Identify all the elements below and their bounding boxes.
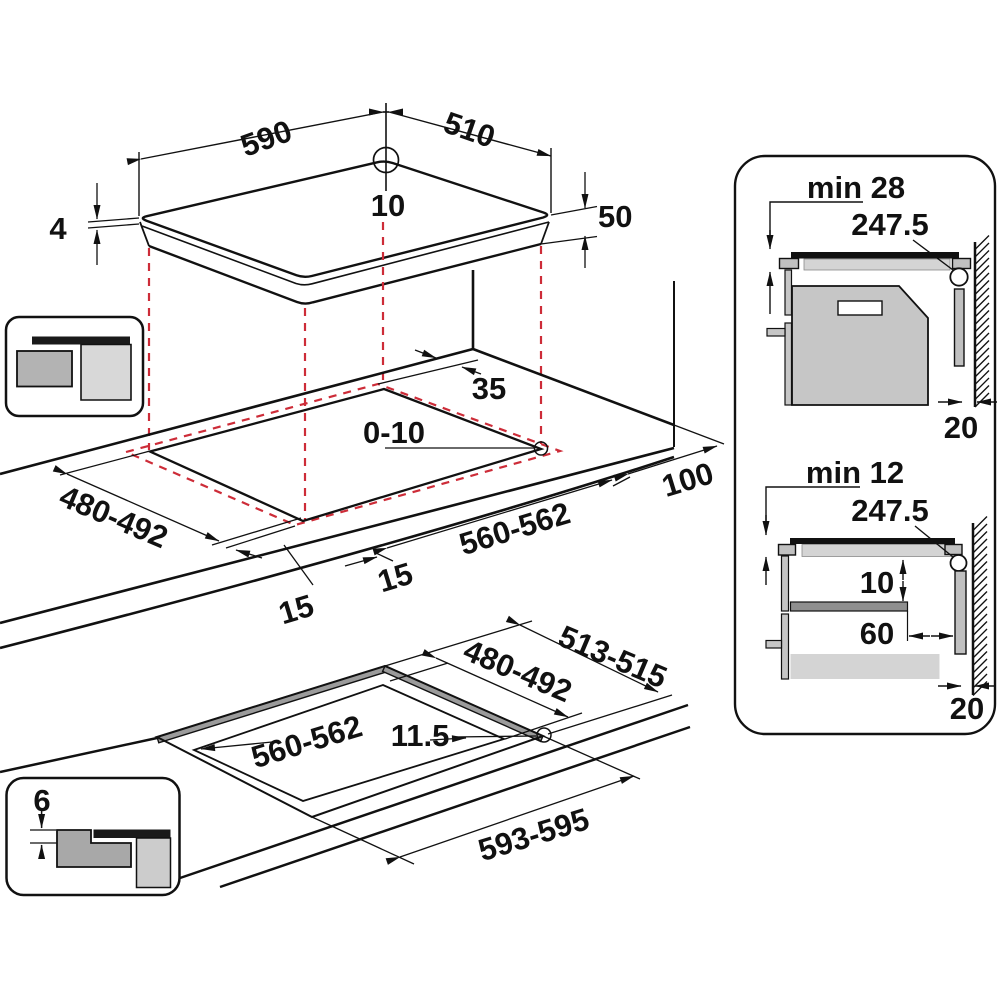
svg-text:0-10: 0-10: [363, 415, 425, 450]
svg-text:min 12: min 12: [806, 455, 904, 490]
svg-text:15: 15: [374, 556, 417, 600]
svg-text:4: 4: [49, 211, 67, 246]
svg-text:560-562: 560-562: [247, 708, 366, 775]
svg-text:590: 590: [236, 113, 297, 164]
svg-text:10: 10: [860, 565, 894, 600]
svg-text:15: 15: [275, 588, 318, 632]
svg-text:20: 20: [944, 410, 978, 445]
svg-text:247.5: 247.5: [851, 207, 929, 242]
svg-text:10: 10: [371, 188, 405, 223]
svg-text:35: 35: [472, 371, 506, 406]
svg-text:480-492: 480-492: [55, 479, 173, 556]
svg-text:100: 100: [658, 455, 718, 504]
svg-text:247.5: 247.5: [851, 493, 929, 528]
svg-text:20: 20: [950, 691, 984, 726]
svg-text:510: 510: [439, 105, 499, 155]
svg-text:11.5: 11.5: [391, 718, 450, 753]
svg-text:min 28: min 28: [807, 170, 905, 205]
svg-text:60: 60: [860, 616, 894, 651]
svg-text:50: 50: [598, 199, 632, 234]
